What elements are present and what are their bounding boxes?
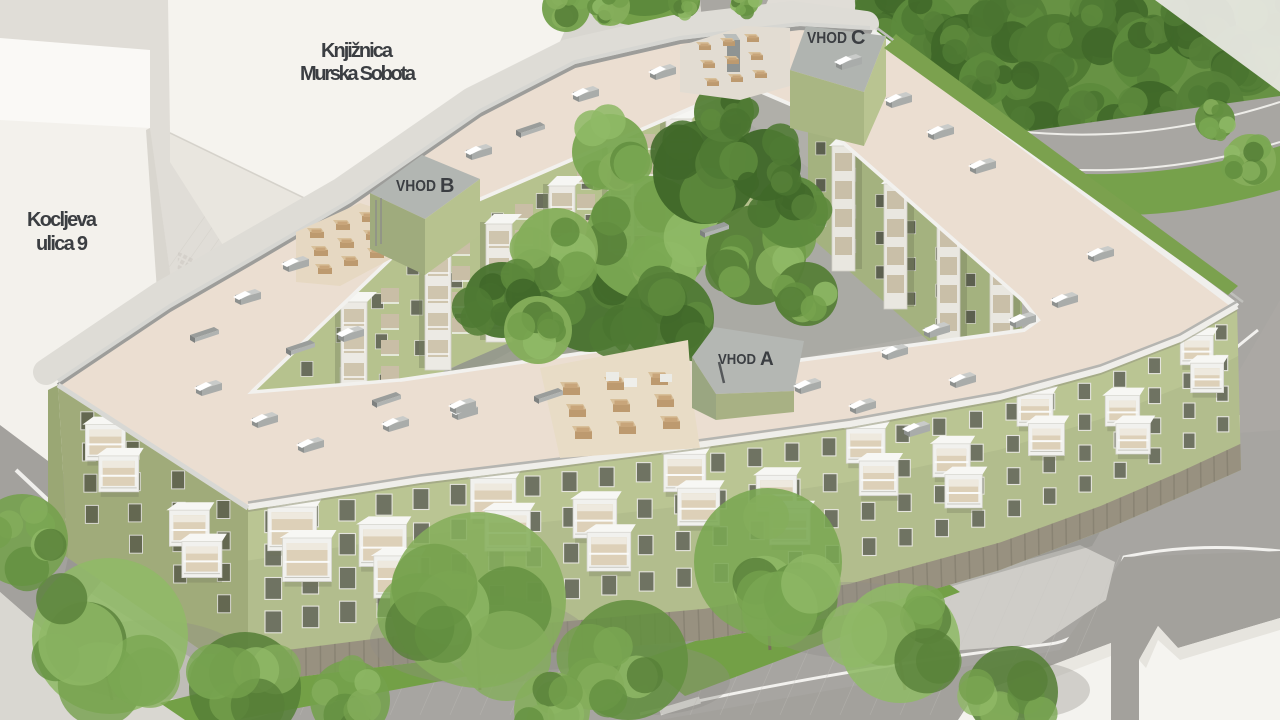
- svg-text:Knjižnica: Knjižnica: [321, 40, 394, 62]
- svg-text:VHOD: VHOD: [396, 178, 436, 195]
- svg-text:Murska Sobota: Murska Sobota: [300, 63, 417, 85]
- svg-text:Kocljeva: Kocljeva: [27, 209, 98, 231]
- svg-text:ulica 9: ulica 9: [36, 233, 88, 255]
- svg-text:A: A: [760, 349, 774, 370]
- svg-text:B: B: [440, 175, 454, 197]
- svg-text:VHOD: VHOD: [718, 351, 756, 368]
- svg-text:VHOD: VHOD: [807, 30, 847, 47]
- svg-text:C: C: [851, 27, 865, 49]
